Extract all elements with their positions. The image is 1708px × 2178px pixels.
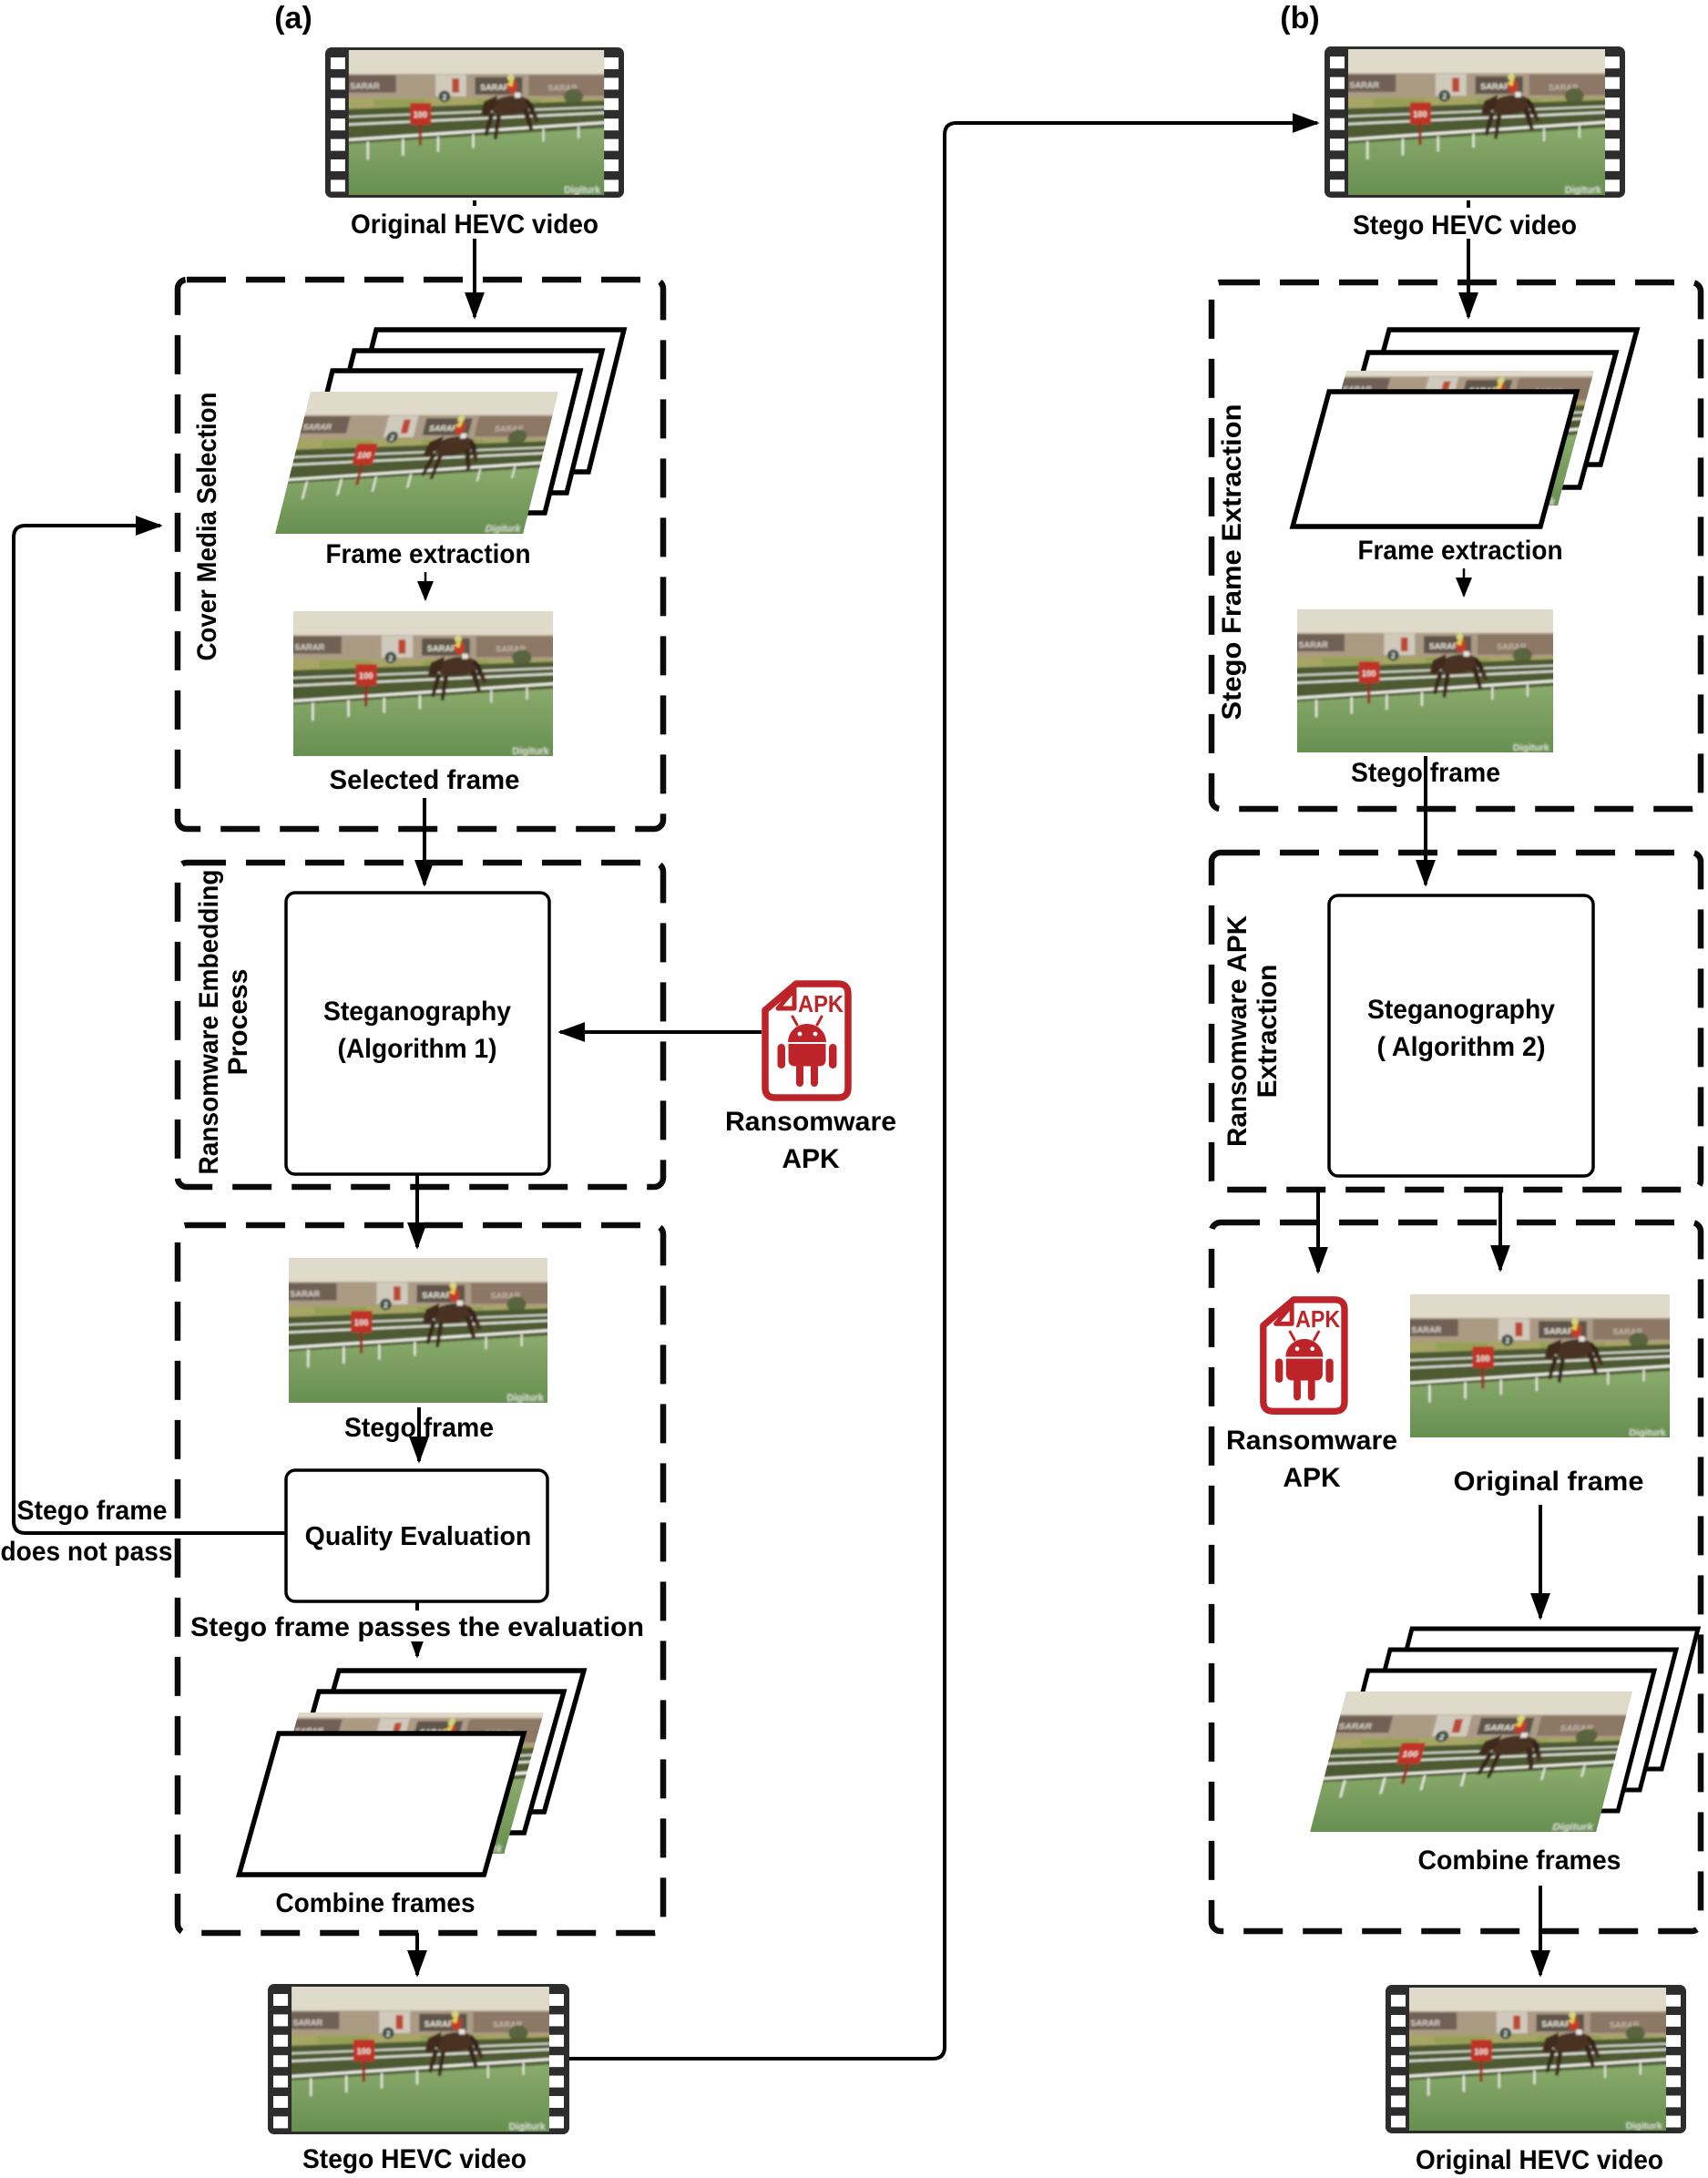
- svg-text:Stego HEVC video: Stego HEVC video: [302, 2144, 527, 2174]
- svg-text:Selected frame: Selected frame: [330, 765, 520, 795]
- svg-text:Steganography: Steganography: [1367, 995, 1555, 1025]
- svg-text:Ransomware: Ransomware: [1226, 1426, 1397, 1456]
- svg-text:Ransomware APK: Ransomware APK: [1222, 915, 1253, 1147]
- svg-text:(Algorithm 1): (Algorithm 1): [338, 1034, 497, 1064]
- svg-text:( Algorithm 2): ( Algorithm 2): [1377, 1032, 1546, 1062]
- svg-text:Stego Frame Extraction: Stego Frame Extraction: [1217, 404, 1247, 721]
- svg-text:Quality Evaluation: Quality Evaluation: [305, 1522, 532, 1551]
- svg-text:APK: APK: [782, 1144, 840, 1174]
- svg-text:Original HEVC video: Original HEVC video: [351, 210, 598, 240]
- svg-text:Cover Media Selection: Cover Media Selection: [192, 393, 222, 661]
- svg-text:APK: APK: [1283, 1463, 1341, 1493]
- svg-text:(b): (b): [1280, 1, 1319, 36]
- svg-text:Original HEVC video: Original HEVC video: [1416, 2145, 1663, 2175]
- svg-text:Stego frame passes the evaluat: Stego frame passes the evaluation: [190, 1612, 644, 1642]
- svg-text:Ransomware: Ransomware: [725, 1107, 896, 1137]
- svg-text:Combine frames: Combine frames: [1418, 1846, 1621, 1876]
- svg-text:Stego frame: Stego frame: [17, 1496, 168, 1526]
- svg-text:Frame extraction: Frame extraction: [326, 539, 531, 569]
- svg-text:Original frame: Original frame: [1454, 1467, 1644, 1497]
- svg-text:Ransomware Embedding: Ransomware Embedding: [194, 870, 224, 1175]
- svg-text:Combine frames: Combine frames: [276, 1888, 476, 1918]
- svg-text:does not pass: does not pass: [1, 1537, 173, 1567]
- svg-text:(a): (a): [274, 1, 312, 36]
- svg-text:Process: Process: [223, 969, 253, 1076]
- svg-text:Steganography: Steganography: [323, 997, 511, 1027]
- svg-text:Stego HEVC video: Stego HEVC video: [1353, 210, 1577, 240]
- svg-text:Extraction: Extraction: [1253, 965, 1283, 1099]
- svg-text:Frame extraction: Frame extraction: [1358, 536, 1563, 566]
